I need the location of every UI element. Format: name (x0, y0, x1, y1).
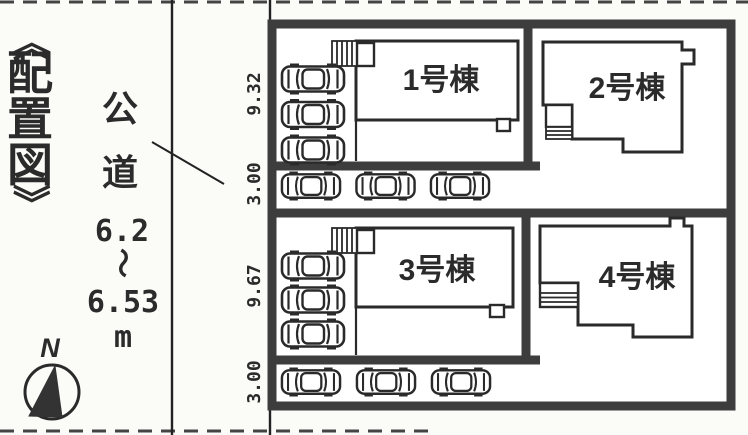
building-1-porch (357, 43, 374, 66)
car-icon (282, 173, 340, 199)
road-label: 公 道 (102, 88, 138, 193)
dimension-parcel1-depth: 9.32 (244, 72, 265, 115)
building-2-label: 2号棟 (589, 72, 667, 105)
car-icon (432, 369, 490, 395)
road-width-tilde: 〜 (104, 248, 139, 278)
building-1-label: 1号棟 (403, 64, 481, 97)
compass: N (25, 333, 79, 419)
drawing-title: 《 配 置 図 》 (7, 23, 53, 222)
building-4-steps (540, 283, 578, 307)
car-icon (282, 369, 340, 395)
dimension-labels: 9.32 3.00 9.67 3.00 (244, 72, 265, 403)
building-1-bay (497, 119, 510, 131)
road-width-max: 6.53 (87, 285, 159, 320)
title-char-1: 配 (7, 47, 53, 99)
building-2-porch (546, 105, 572, 127)
building-3-bay (490, 305, 504, 317)
building-3: 3号棟 (332, 228, 513, 317)
building-2: 2号棟 (543, 42, 694, 152)
building-4-label: 4号棟 (599, 261, 677, 294)
title-close-bracket: 》 (8, 184, 50, 222)
car-icon (282, 320, 344, 348)
road-width-note: 6.2 〜 6.53 m (87, 214, 159, 355)
road-char-1: 公 (102, 88, 138, 129)
car-icon (282, 252, 344, 280)
dimension-parcel1-parking: 3.00 (244, 162, 265, 205)
building-3-stairs (332, 228, 357, 253)
road-width-unit: m (114, 320, 132, 355)
car-icon (431, 173, 489, 199)
car-icon (357, 369, 415, 395)
compass-north-label: N (40, 333, 60, 363)
site-plan-svg: 《 配 置 図 》 公 道 6.2 〜 6.53 m (0, 0, 748, 435)
building-3-porch (357, 230, 374, 253)
dimension-parcel3-depth: 9.67 (244, 264, 265, 307)
car-icon (282, 101, 344, 129)
car-icon (282, 65, 344, 93)
car-icon (282, 136, 344, 164)
road-char-2: 道 (102, 152, 138, 193)
site-plan-page: 《 配 置 図 》 公 道 6.2 〜 6.53 m (0, 0, 748, 435)
building-1: 1号棟 (332, 41, 518, 131)
dimension-parcel3-parking: 3.00 (244, 360, 265, 403)
road-width-tick (152, 142, 224, 184)
building-3-label: 3号棟 (399, 254, 477, 287)
car-icon (356, 173, 414, 199)
building-1-stairs (332, 41, 357, 66)
car-icon (282, 286, 344, 314)
road-width-min: 6.2 (95, 214, 149, 249)
title-char-2: 置 (7, 93, 53, 145)
building-2-steps (546, 127, 572, 139)
